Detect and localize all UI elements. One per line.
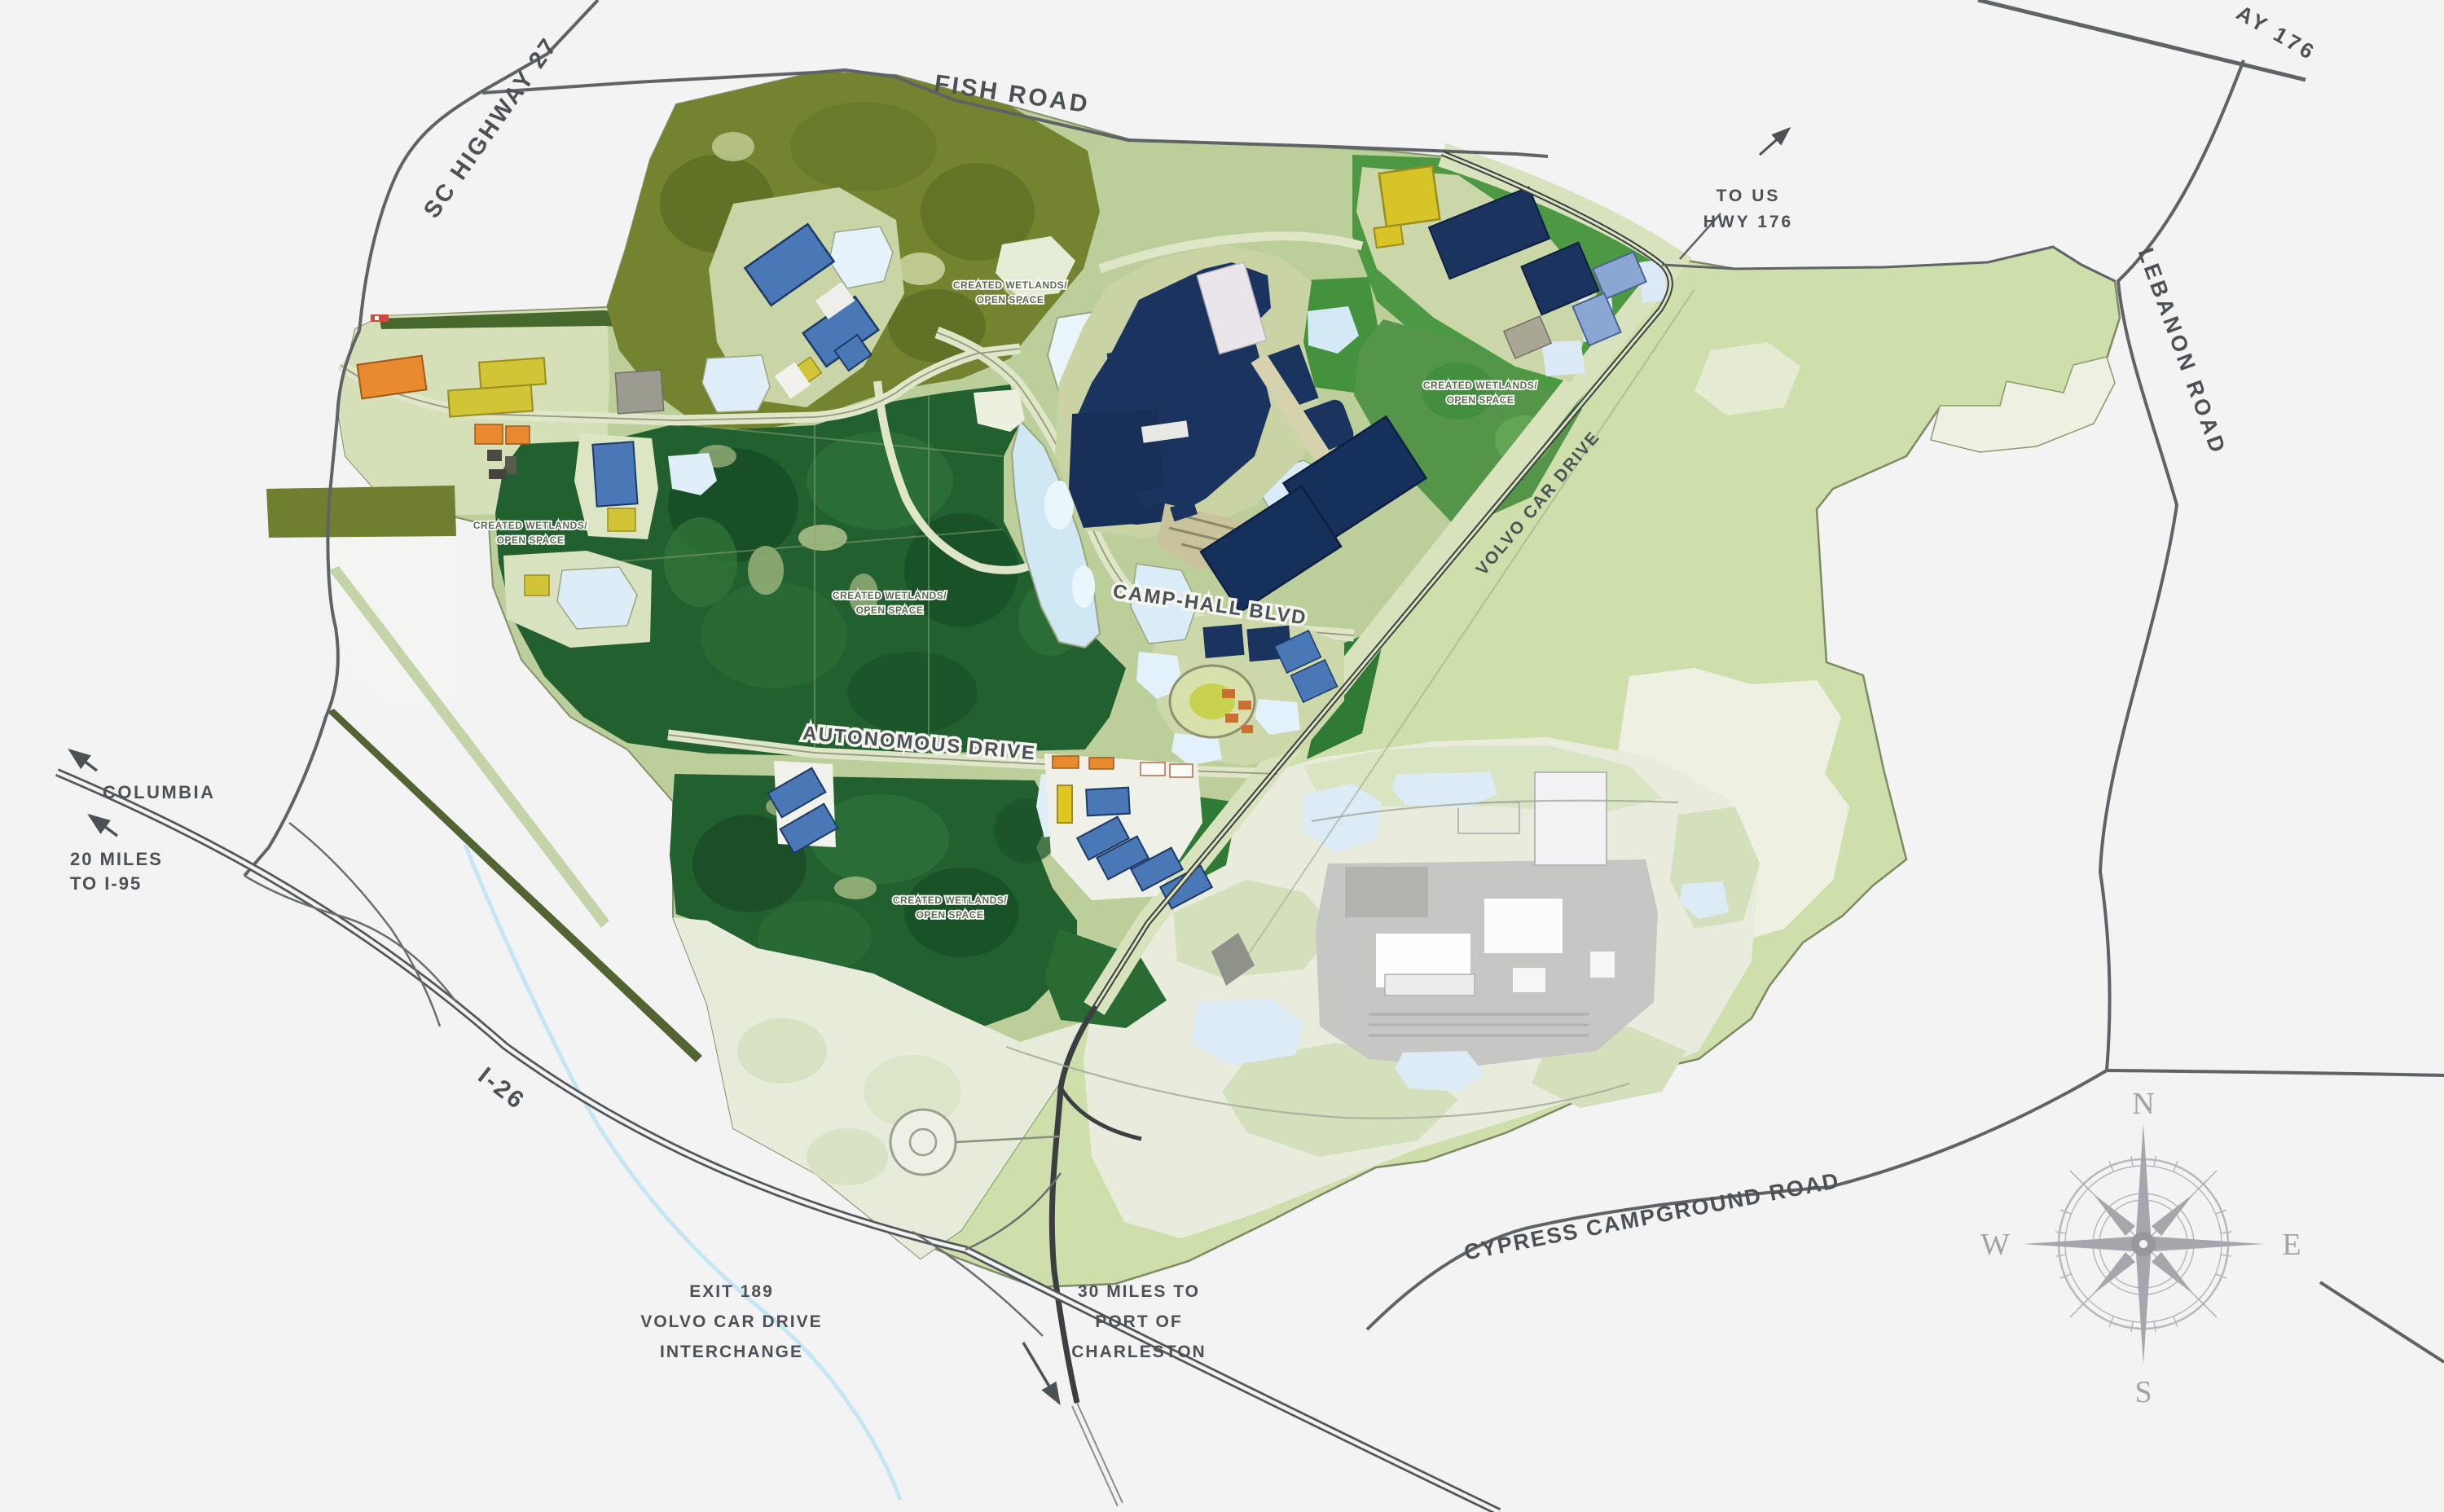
svg-text:COLUMBIA: COLUMBIA: [103, 782, 216, 802]
svg-text:CREATED WETLANDS/: CREATED WETLANDS/: [953, 279, 1067, 291]
svg-text:TO US: TO US: [1717, 187, 1781, 205]
svg-text:E: E: [2282, 1228, 2301, 1262]
svg-text:20 MILES: 20 MILES: [70, 849, 163, 869]
svg-text:HWY 176: HWY 176: [1703, 213, 1794, 231]
svg-text:30 MILES TO: 30 MILES TO: [1078, 1282, 1200, 1301]
svg-text:PORT OF: PORT OF: [1095, 1312, 1182, 1331]
svg-text:CHARLESTON: CHARLESTON: [1071, 1343, 1206, 1361]
svg-text:CREATED WETLANDS/: CREATED WETLANDS/: [1423, 380, 1537, 391]
svg-text:CREATED WETLANDS/: CREATED WETLANDS/: [473, 520, 587, 531]
svg-text:N: N: [2132, 1087, 2154, 1121]
svg-text:S: S: [2134, 1375, 2152, 1409]
svg-text:W: W: [1980, 1228, 2010, 1262]
svg-text:EXIT 189: EXIT 189: [689, 1282, 774, 1301]
svg-text:OPEN SPACE: OPEN SPACE: [497, 534, 565, 546]
svg-text:OPEN SPACE: OPEN SPACE: [977, 294, 1044, 305]
svg-text:OPEN SPACE: OPEN SPACE: [856, 604, 924, 616]
svg-text:INTERCHANGE: INTERCHANGE: [660, 1343, 803, 1361]
svg-text:OPEN SPACE: OPEN SPACE: [1447, 394, 1514, 406]
svg-text:CREATED WETLANDS/: CREATED WETLANDS/: [833, 590, 947, 601]
svg-text:VOLVO CAR DRIVE: VOLVO CAR DRIVE: [640, 1312, 822, 1331]
svg-text:OPEN SPACE: OPEN SPACE: [916, 909, 984, 921]
svg-text:TO I-95: TO I-95: [70, 873, 142, 894]
svg-text:CREATED WETLANDS/: CREATED WETLANDS/: [893, 894, 1007, 906]
